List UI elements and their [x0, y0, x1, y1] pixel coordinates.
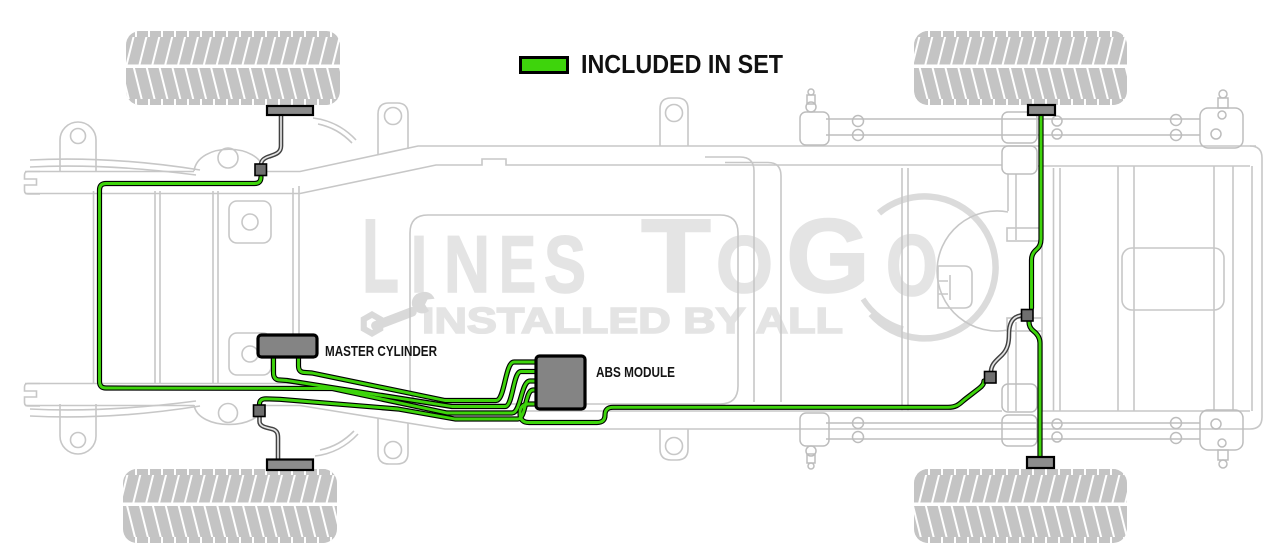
- svg-text:INCLUDED IN SET: INCLUDED IN SET: [581, 51, 783, 79]
- svg-text:O: O: [886, 218, 938, 314]
- svg-text:E: E: [499, 220, 536, 310]
- svg-text:N: N: [444, 220, 490, 310]
- svg-text:G: G: [786, 198, 870, 315]
- svg-text:MASTER CYLINDER: MASTER CYLINDER: [325, 343, 437, 360]
- svg-text:ABS MODULE: ABS MODULE: [596, 364, 675, 381]
- svg-text:INSTALLED BY ALL: INSTALLED BY ALL: [422, 300, 843, 341]
- svg-text:L: L: [362, 198, 399, 315]
- svg-text:S: S: [544, 220, 586, 310]
- svg-text:O: O: [716, 220, 773, 310]
